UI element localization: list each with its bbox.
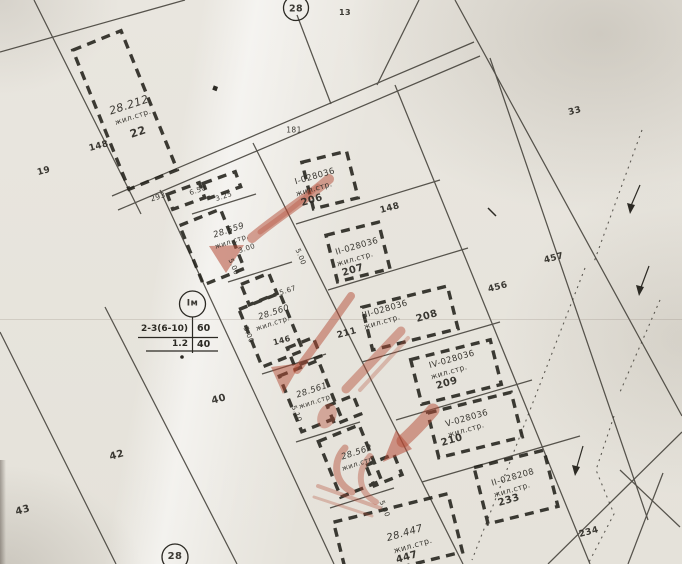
- label-block-13: 13: [339, 9, 351, 17]
- scan-edge-shadow: [0, 460, 6, 564]
- survey-arrow-icons: [488, 185, 649, 476]
- block-number-top: 28: [289, 4, 303, 14]
- red-scribble-4: [314, 497, 372, 516]
- zone-row1-left: 2-3(6-10): [128, 324, 188, 334]
- block-number-bottom: 28: [168, 552, 183, 562]
- map-canvas: [0, 0, 682, 564]
- red-arrow-3-shaft: [403, 410, 433, 441]
- zone-row1-right: 60: [197, 323, 210, 334]
- red-streak-1: [346, 331, 401, 389]
- zone-row2-left: 1.2: [148, 339, 188, 349]
- cadastral-plan-scan: 28 28 Iм 2-3(6-10) 60 1.2 40 1328.212жил…: [0, 0, 682, 564]
- scan-fold-line: [0, 319, 682, 320]
- survey-mark: [212, 85, 218, 91]
- zone-id: Iм: [187, 300, 199, 309]
- label-181: 181: [286, 126, 302, 134]
- block-circles: [162, 0, 309, 564]
- zone-row2-right: 40: [197, 339, 210, 350]
